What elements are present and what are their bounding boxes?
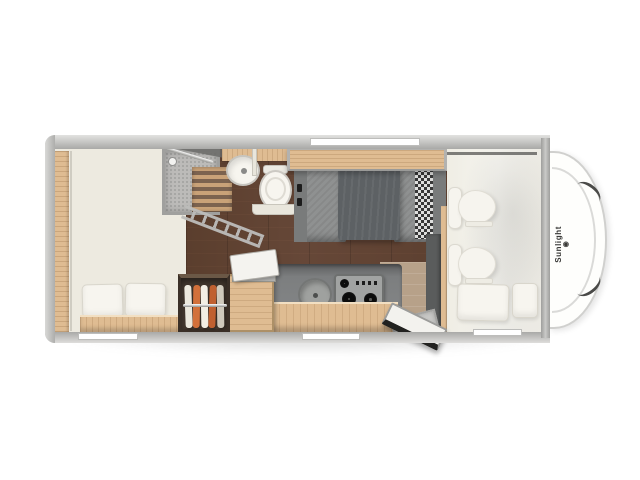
- dinette-table: [338, 168, 400, 240]
- window: [310, 138, 420, 146]
- cab-seat: [448, 185, 500, 231]
- pillow: [457, 283, 510, 321]
- floorplan-scene: Sunlight◉: [0, 0, 640, 480]
- cab-seat: [448, 242, 500, 288]
- dinette-bench-right: [394, 166, 446, 242]
- checkered-cushion: [415, 169, 433, 239]
- bed-side-shelf: [55, 151, 69, 332]
- shower-head-icon: [168, 157, 177, 166]
- window: [302, 333, 360, 340]
- brand-logo-symbol-icon: ◉: [563, 240, 571, 249]
- brand-logo: Sunlight◉: [553, 204, 571, 284]
- brand-logo-text: Sunlight: [554, 226, 563, 263]
- pillow: [512, 283, 538, 318]
- vehicle-wall-rear: [45, 135, 55, 343]
- bed-platform-edge: [70, 151, 72, 331]
- seatbelt-buckle-icon: [297, 198, 302, 206]
- seatbelt-buckle-icon: [297, 184, 302, 192]
- bathroom-wall: [252, 147, 257, 176]
- burner-icon: [340, 279, 349, 288]
- kitchen-cabinet: [228, 274, 274, 332]
- overcab-edge-line: [447, 152, 537, 155]
- bed-front-bench: [80, 315, 182, 332]
- window: [78, 333, 138, 340]
- window: [473, 329, 522, 336]
- hob-knobs: [356, 281, 378, 285]
- pillow: [82, 283, 124, 318]
- seat-cushion: [458, 247, 496, 281]
- wardrobe: [178, 274, 230, 332]
- pillow: [125, 283, 167, 318]
- kitchen-front-panel: [272, 302, 398, 332]
- windshield-bar: [541, 138, 550, 338]
- vehicle-wall-top: [45, 135, 550, 149]
- wardrobe-rail: [183, 304, 227, 307]
- seat-cushion: [458, 190, 496, 224]
- overhead-locker: [287, 147, 447, 171]
